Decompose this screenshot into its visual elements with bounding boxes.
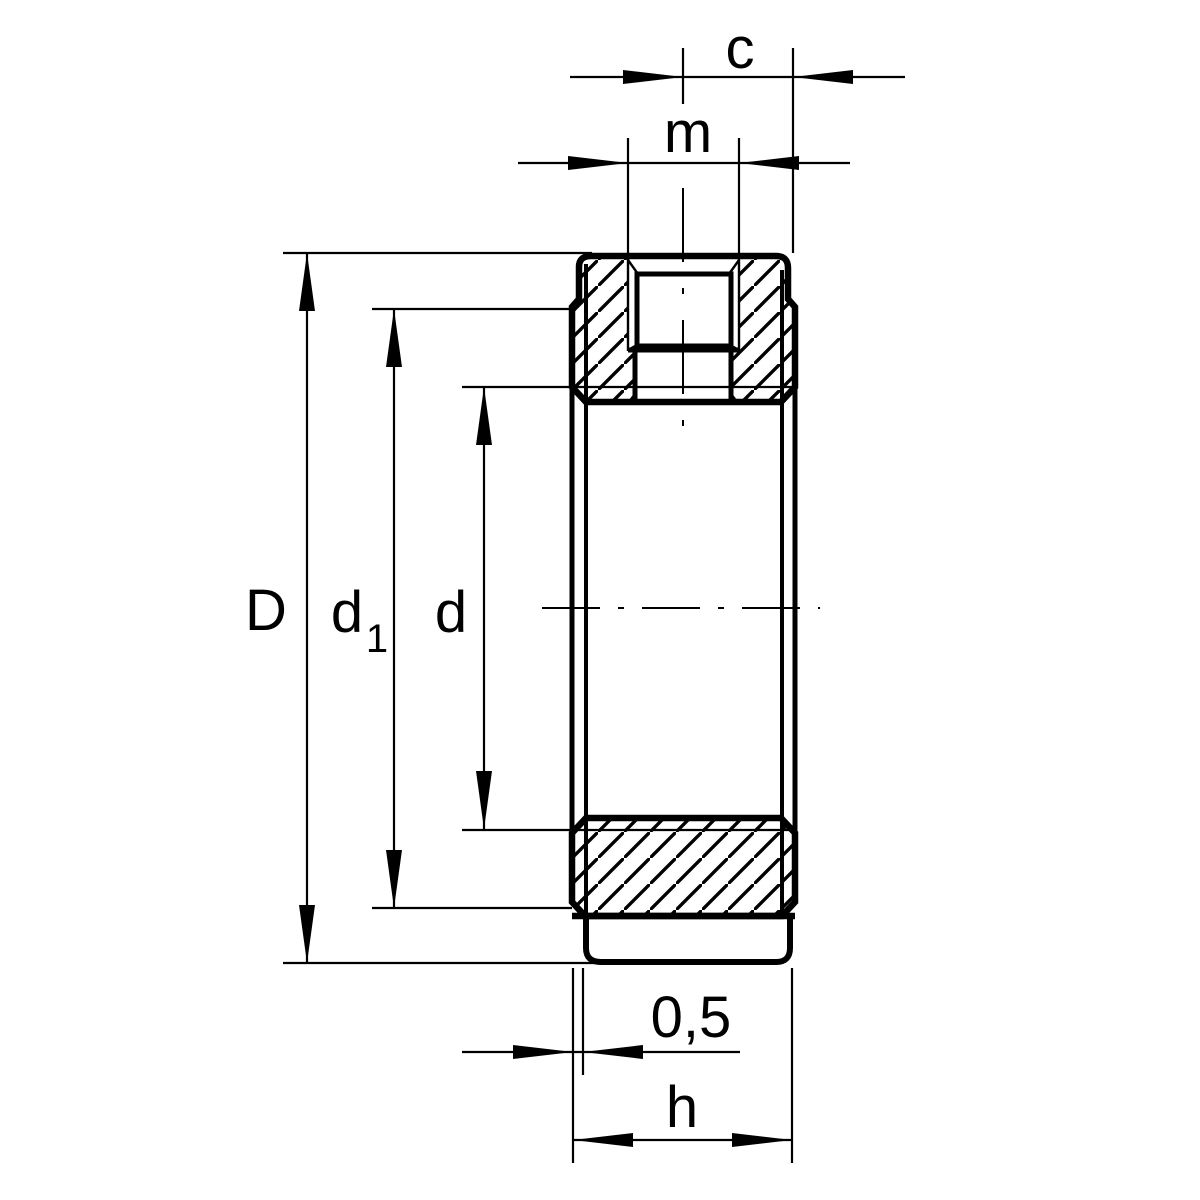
label-face-relief: 0,5 [651, 985, 732, 1050]
label-m: m [664, 100, 712, 165]
m-arrow-right [739, 156, 799, 170]
c-arrow-left [623, 70, 683, 84]
locknut-section-drawing: c m D d 1 d 0,5 h [0, 0, 1200, 1200]
label-outer-diameter: D [245, 578, 287, 643]
h-arrow-left [573, 1133, 633, 1147]
bottom-wall-hatch [572, 818, 795, 916]
d-arrow-bottom [476, 771, 492, 829]
label-height: h [666, 1075, 698, 1140]
bottom-slot-band [586, 916, 790, 962]
label-face-diameter: d [331, 580, 363, 645]
D-arrow-bottom [299, 905, 315, 963]
d-arrow-top [476, 387, 492, 445]
label-bore-diameter: d [435, 580, 467, 645]
bottom-wall-section [572, 818, 795, 916]
relief-arrow-left [513, 1045, 573, 1059]
relief-arrow-right [583, 1045, 643, 1059]
h-arrow-right [732, 1133, 792, 1147]
d1-arrow-bottom [386, 850, 402, 908]
technical-drawing-svg: c m D d 1 d 0,5 h [0, 0, 1200, 1200]
D-arrow-top [299, 253, 315, 311]
m-arrow-left [568, 156, 628, 170]
label-face-diameter-subscript: 1 [366, 617, 388, 661]
label-c: c [726, 16, 755, 81]
c-arrow-right [793, 70, 853, 84]
d1-arrow-top [386, 309, 402, 367]
dimension-bore-diameter [476, 387, 492, 829]
